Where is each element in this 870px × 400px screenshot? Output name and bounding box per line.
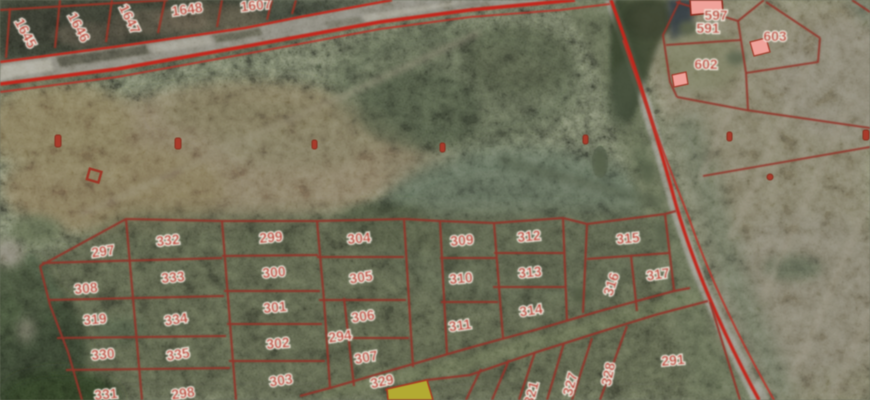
svg-text:591: 591 [696,20,720,36]
svg-text:300: 300 [262,263,287,281]
svg-text:309: 309 [450,231,475,249]
svg-text:306: 306 [350,306,376,325]
svg-text:304: 304 [347,229,372,247]
svg-text:334: 334 [163,309,189,328]
svg-text:602: 602 [694,56,718,72]
svg-text:294: 294 [327,326,353,345]
svg-text:302: 302 [266,334,291,352]
svg-text:305: 305 [348,267,374,286]
svg-text:603: 603 [763,28,787,44]
svg-text:317: 317 [645,264,671,283]
svg-text:332: 332 [156,231,181,249]
svg-text:330: 330 [91,345,116,363]
svg-text:297: 297 [90,241,116,260]
svg-text:298: 298 [170,383,196,400]
svg-text:303: 303 [268,370,294,389]
svg-text:311: 311 [448,315,473,334]
svg-text:313: 313 [518,263,543,281]
svg-text:314: 314 [518,300,544,319]
svg-text:308: 308 [74,279,99,297]
svg-text:315: 315 [616,229,641,247]
svg-text:319: 319 [83,310,108,328]
svg-text:331: 331 [94,385,119,400]
svg-text:299: 299 [259,228,284,246]
svg-text:301: 301 [263,298,288,316]
svg-text:333: 333 [161,268,186,286]
svg-text:335: 335 [165,344,191,363]
svg-text:312: 312 [517,227,542,245]
svg-text:291: 291 [661,351,686,369]
svg-text:310: 310 [449,269,474,287]
